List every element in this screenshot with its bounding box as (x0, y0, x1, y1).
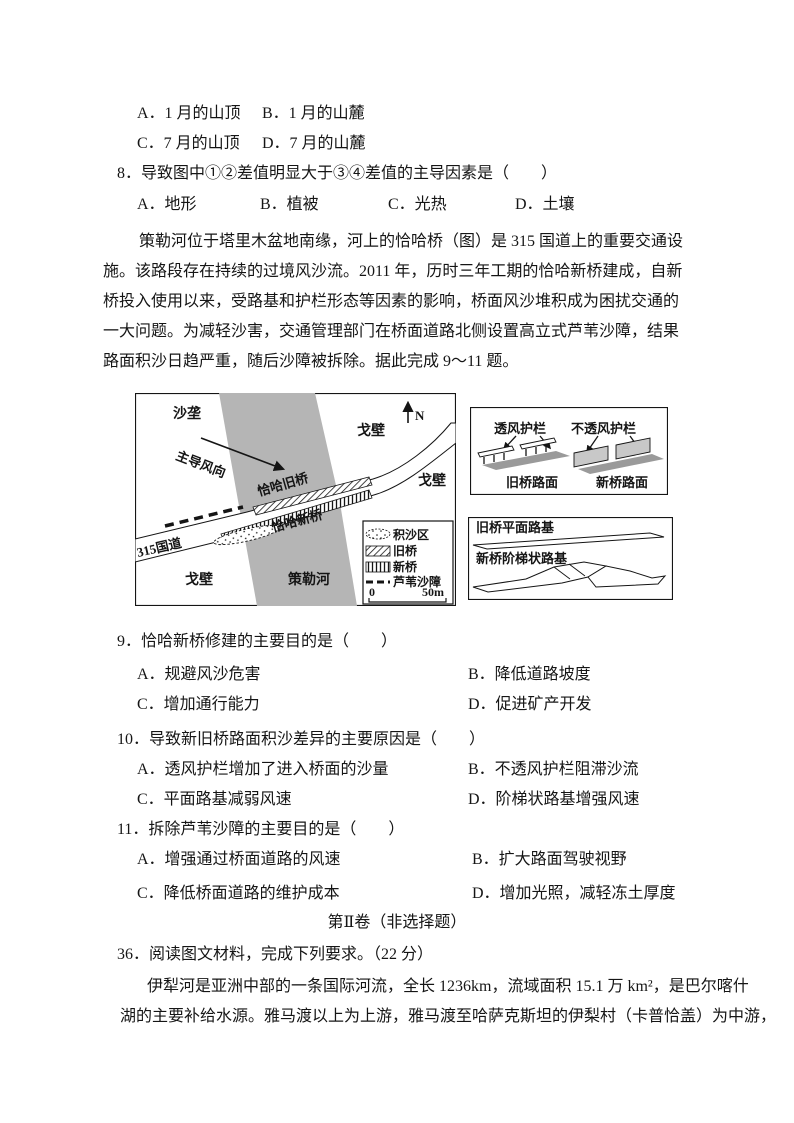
q10-option-d: D．阶梯状路基增强风速 (468, 790, 640, 809)
q8-option-a: A．地形 (137, 195, 197, 214)
legend-old-bridge-icon (366, 546, 390, 556)
passage1-line-4: 一大问题。为减轻沙害，交通管理部门在桥面道路北侧设置高立式芦苇沙障，结果 (103, 322, 679, 341)
q9-option-b: B．降低道路坡度 (468, 665, 591, 684)
old-surface-label: 旧桥路面 (506, 475, 558, 490)
q10-option-a: A．透风护栏增加了进入桥面的沙量 (137, 760, 389, 779)
q7-option-b: B．1 月的山麓 (262, 104, 365, 123)
q8-option-d: D．土壤 (515, 195, 575, 214)
q8-option-c: C．光热 (388, 195, 447, 214)
passage1-line-2: 施。该路段存在持续的过境风沙流。2011 年，历时三年工期的恰哈新桥建成，自新 (103, 262, 682, 281)
q7-option-d: D．7 月的山麓 (262, 134, 366, 153)
q8-stem: 8．导致图中①②差值明显大于③④差值的主导因素是（ ） (117, 164, 557, 183)
q36-passage-line-1: 伊犁河是亚洲中部的一条国际河流，全长 1236km，流域面积 15.1 万 km… (147, 977, 749, 996)
legend-new-bridge-icon (366, 562, 390, 572)
q11-stem: 11．拆除芦苇沙障的主要目的是（ ） (117, 820, 404, 839)
roadbed-panel-figure: 旧桥平面路基 新桥阶梯状路基 (468, 517, 673, 605)
map-label-river: 策勒河 (287, 571, 330, 588)
q9-option-a: A．规避风沙危害 (137, 665, 261, 684)
q10-option-c: C．平面路基减弱风速 (137, 790, 292, 809)
q7-option-c: C．7 月的山顶 (137, 134, 240, 153)
exam-page: A．1 月的山顶 B．1 月的山麓 C．7 月的山顶 D．7 月的山麓 8．导致… (0, 0, 794, 1123)
q9-stem: 9．恰哈新桥修建的主要目的是（ ） (117, 632, 397, 651)
q11-option-a: A．增强通过桥面道路的风速 (137, 850, 341, 869)
legend-scale-zero: 0 (369, 585, 375, 599)
passage1-line-3: 桥投入使用以来，受路基和护栏形态等因素的影响，桥面风沙堆积成为困扰交通的 (103, 292, 679, 311)
legend-sand-area-label: 积沙区 (393, 527, 429, 542)
q11-option-c: C．降低桥面道路的维护成本 (137, 884, 340, 903)
map-label-north: N (415, 408, 425, 423)
impermeable-railing-label: 不透风护栏 (571, 421, 636, 436)
bridge-map-figure: 沙垄 主导风向 戈壁 戈壁 戈壁 策勒河 恰哈旧桥 恰哈新桥 315国道 N 积… (135, 393, 456, 611)
flat-roadbed-label: 旧桥平面路基 (476, 520, 555, 535)
section2-title: 第Ⅱ卷（非选择题） (0, 913, 794, 932)
stepped-roadbed-label: 新桥阶梯状路基 (476, 551, 568, 566)
railing-panel-svg: 透风护栏 不透风护栏 旧桥路面 新桥路面 (470, 407, 668, 495)
q10-option-b: B．不透风护栏阻滞沙流 (468, 760, 639, 779)
q11-option-b: B．扩大路面驾驶视野 (472, 850, 627, 869)
passage1-line-5: 路面积沙日趋严重，随后沙障被拆除。据此完成 9～11 题。 (103, 352, 518, 371)
roadbed-panel-svg: 旧桥平面路基 新桥阶梯状路基 (468, 517, 673, 600)
q36-stem: 36．阅读图文材料，完成下列要求。（22 分） (117, 945, 433, 964)
q7-option-a: A．1 月的山顶 (137, 104, 241, 123)
new-surface-label: 新桥路面 (596, 475, 648, 490)
legend-scale-end: 50m (422, 585, 444, 599)
q9-option-c: C．增加通行能力 (137, 695, 260, 714)
q10-stem: 10．导致新旧桥路面积沙差异的主要原因是（ ） (117, 730, 485, 749)
q36-passage-line-2: 湖的主要补给水源。雅马渡以上为上游，雅马渡至哈萨克斯坦的伊梨村（卡普恰盖）为中游… (120, 1007, 776, 1026)
legend-old-bridge-label: 旧桥 (393, 543, 418, 558)
map-label-sand-ridge: 沙垄 (173, 405, 201, 422)
map-label-gobi-top: 戈壁 (357, 422, 385, 439)
q8-option-b: B．植被 (260, 195, 319, 214)
map-label-gobi-bottom: 戈壁 (185, 571, 213, 588)
permeable-railing-label: 透风护栏 (494, 421, 546, 436)
bridge-map-svg: 沙垄 主导风向 戈壁 戈壁 戈壁 策勒河 恰哈旧桥 恰哈新桥 315国道 N 积… (135, 393, 456, 606)
legend-sand-area-icon (366, 529, 390, 539)
railing-panel-figure: 透风护栏 不透风护栏 旧桥路面 新桥路面 (470, 407, 668, 500)
passage1-line-1: 策勒河位于塔里木盆地南缘，河上的恰哈桥（图）是 315 国道上的重要交通设 (139, 232, 683, 251)
q11-option-d: D．增加光照，减轻冻土厚度 (472, 884, 676, 903)
legend-new-bridge-label: 新桥 (393, 559, 418, 574)
map-label-gobi-right: 戈壁 (418, 472, 446, 489)
q9-option-d: D．促进矿产开发 (468, 695, 592, 714)
